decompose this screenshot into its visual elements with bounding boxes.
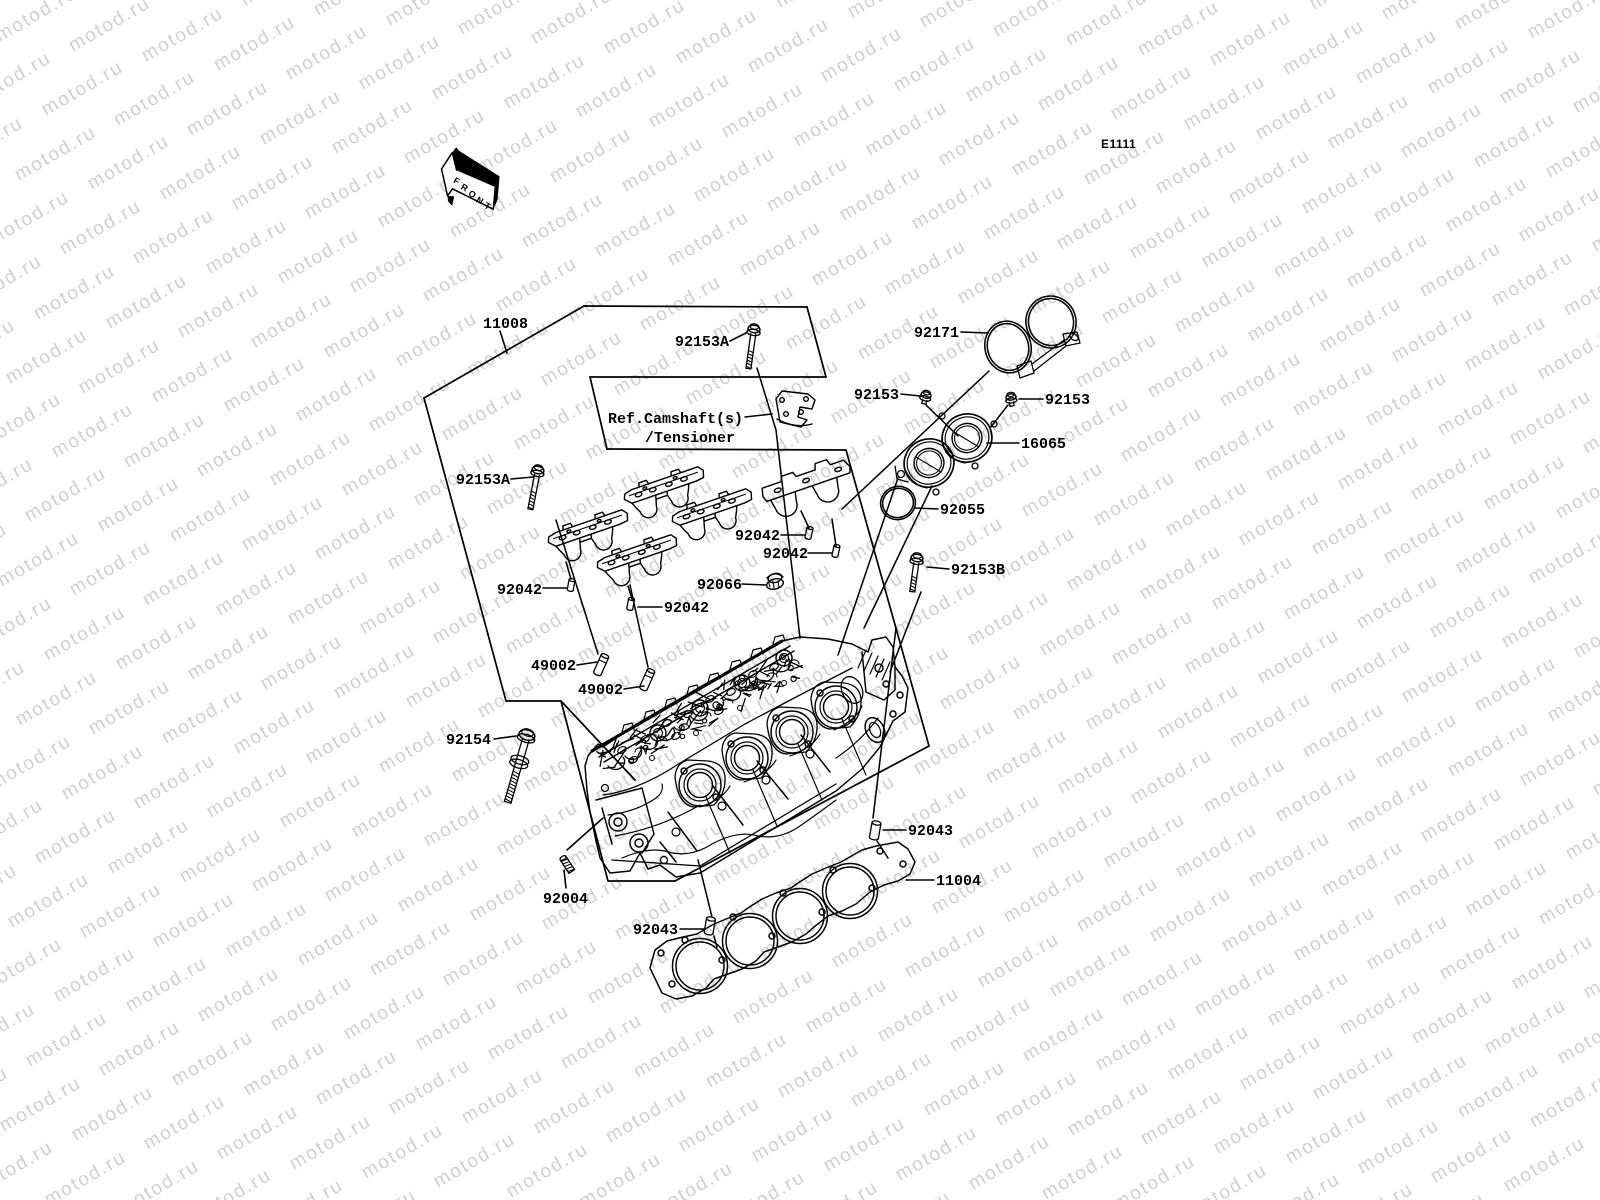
svg-text:11008: 11008	[483, 316, 528, 333]
svg-text:92154: 92154	[446, 732, 491, 749]
svg-text:92153A: 92153A	[456, 472, 510, 489]
svg-text:92055: 92055	[940, 502, 985, 519]
svg-text:92042: 92042	[497, 582, 542, 599]
svg-text:92042: 92042	[763, 546, 808, 563]
svg-text:92043: 92043	[633, 922, 678, 939]
svg-text:92066: 92066	[697, 577, 742, 594]
svg-text:92042: 92042	[735, 528, 780, 545]
svg-text:92153: 92153	[854, 387, 899, 404]
svg-text:Ref.Camshaft(s): Ref.Camshaft(s)	[608, 411, 743, 428]
svg-text:11004: 11004	[936, 873, 981, 890]
svg-text:49002: 49002	[531, 658, 576, 675]
svg-text:92043: 92043	[908, 823, 953, 840]
svg-text:92042: 92042	[664, 600, 709, 617]
svg-text:92153A: 92153A	[675, 334, 729, 351]
svg-text:E1111: E1111	[1101, 137, 1136, 151]
svg-text:/Tensioner: /Tensioner	[645, 430, 735, 447]
svg-text:49002: 49002	[578, 682, 623, 699]
svg-text:92004: 92004	[543, 891, 588, 908]
svg-text:92153: 92153	[1045, 392, 1090, 409]
svg-text:16065: 16065	[1021, 436, 1066, 453]
svg-text:92153B: 92153B	[951, 562, 1005, 579]
svg-text:92171: 92171	[914, 325, 959, 342]
